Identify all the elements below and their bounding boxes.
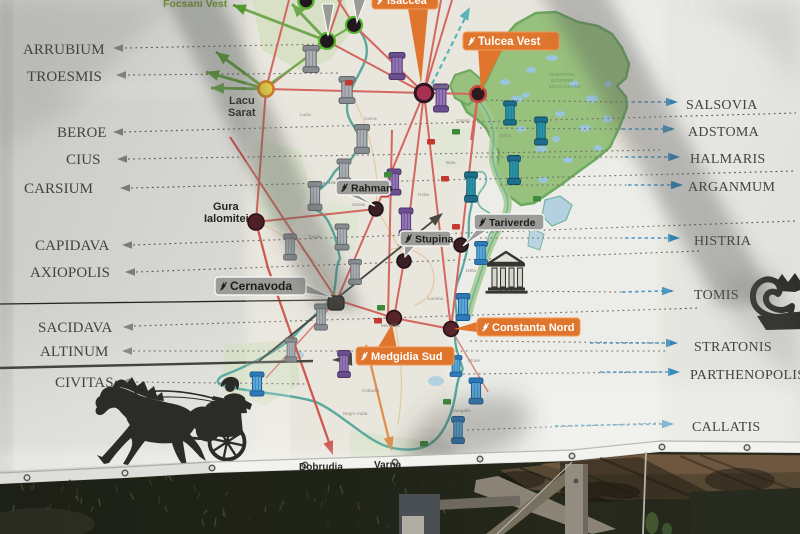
- svg-text:Stupina: Stupina: [415, 234, 454, 246]
- svg-text:Medgidia Sud: Medgidia Sud: [371, 351, 443, 363]
- svg-text:SALSOVIA: SALSOVIA: [686, 98, 758, 113]
- svg-text:Tulcea Vest: Tulcea Vest: [478, 36, 541, 48]
- svg-text:ARRUBIUM: ARRUBIUM: [23, 42, 105, 58]
- svg-text:CAPIDAVA: CAPIDAVA: [35, 238, 110, 254]
- svg-text:Isaccea: Isaccea: [387, 0, 428, 7]
- svg-text:CALLATIS: CALLATIS: [692, 420, 761, 435]
- svg-text:Rahman: Rahman: [351, 183, 392, 195]
- svg-text:PARTHENOPOLIS: PARTHENOPOLIS: [690, 368, 800, 383]
- svg-text:TROESMIS: TROESMIS: [27, 69, 102, 85]
- svg-text:Gura: Gura: [213, 201, 240, 213]
- svg-text:Luciu: Luciu: [300, 112, 311, 117]
- svg-text:AXIOPOLIS: AXIOPOLIS: [30, 265, 110, 281]
- svg-text:BEROE: BEROE: [57, 125, 107, 141]
- svg-text:Mihai: Mihai: [500, 133, 511, 138]
- svg-text:SACIDAVA: SACIDAVA: [38, 320, 113, 336]
- svg-text:CIUS: CIUS: [66, 152, 101, 168]
- svg-text:Catalci: Catalci: [456, 118, 470, 123]
- svg-text:Horia: Horia: [418, 192, 429, 197]
- svg-text:Tariverde: Tariverde: [489, 217, 536, 229]
- svg-text:Negru Voda: Negru Voda: [343, 411, 368, 416]
- svg-text:Cerna: Cerna: [364, 116, 377, 121]
- svg-text:Niculitel: Niculitel: [432, 84, 448, 89]
- svg-text:ALTINUM: ALTINUM: [40, 344, 108, 360]
- svg-text:Cobadin: Cobadin: [362, 388, 380, 393]
- svg-text:HALMARIS: HALMARIS: [690, 152, 766, 167]
- svg-text:CARSIUM: CARSIUM: [24, 181, 93, 197]
- svg-text:CIVITAS: CIVITAS: [55, 375, 114, 391]
- svg-text:Baia: Baia: [446, 160, 456, 165]
- svg-text:Eforie: Eforie: [468, 358, 480, 363]
- svg-text:ADSTOMA: ADSTOMA: [688, 125, 760, 140]
- svg-text:Lumina: Lumina: [428, 296, 444, 301]
- svg-text:Saraiu: Saraiu: [352, 202, 366, 207]
- svg-text:Ialomitei: Ialomitei: [204, 213, 249, 225]
- svg-text:Constanta Nord: Constanta Nord: [492, 322, 575, 334]
- svg-text:Istria: Istria: [466, 268, 476, 273]
- svg-text:Cernavoda: Cernavoda: [230, 279, 292, 293]
